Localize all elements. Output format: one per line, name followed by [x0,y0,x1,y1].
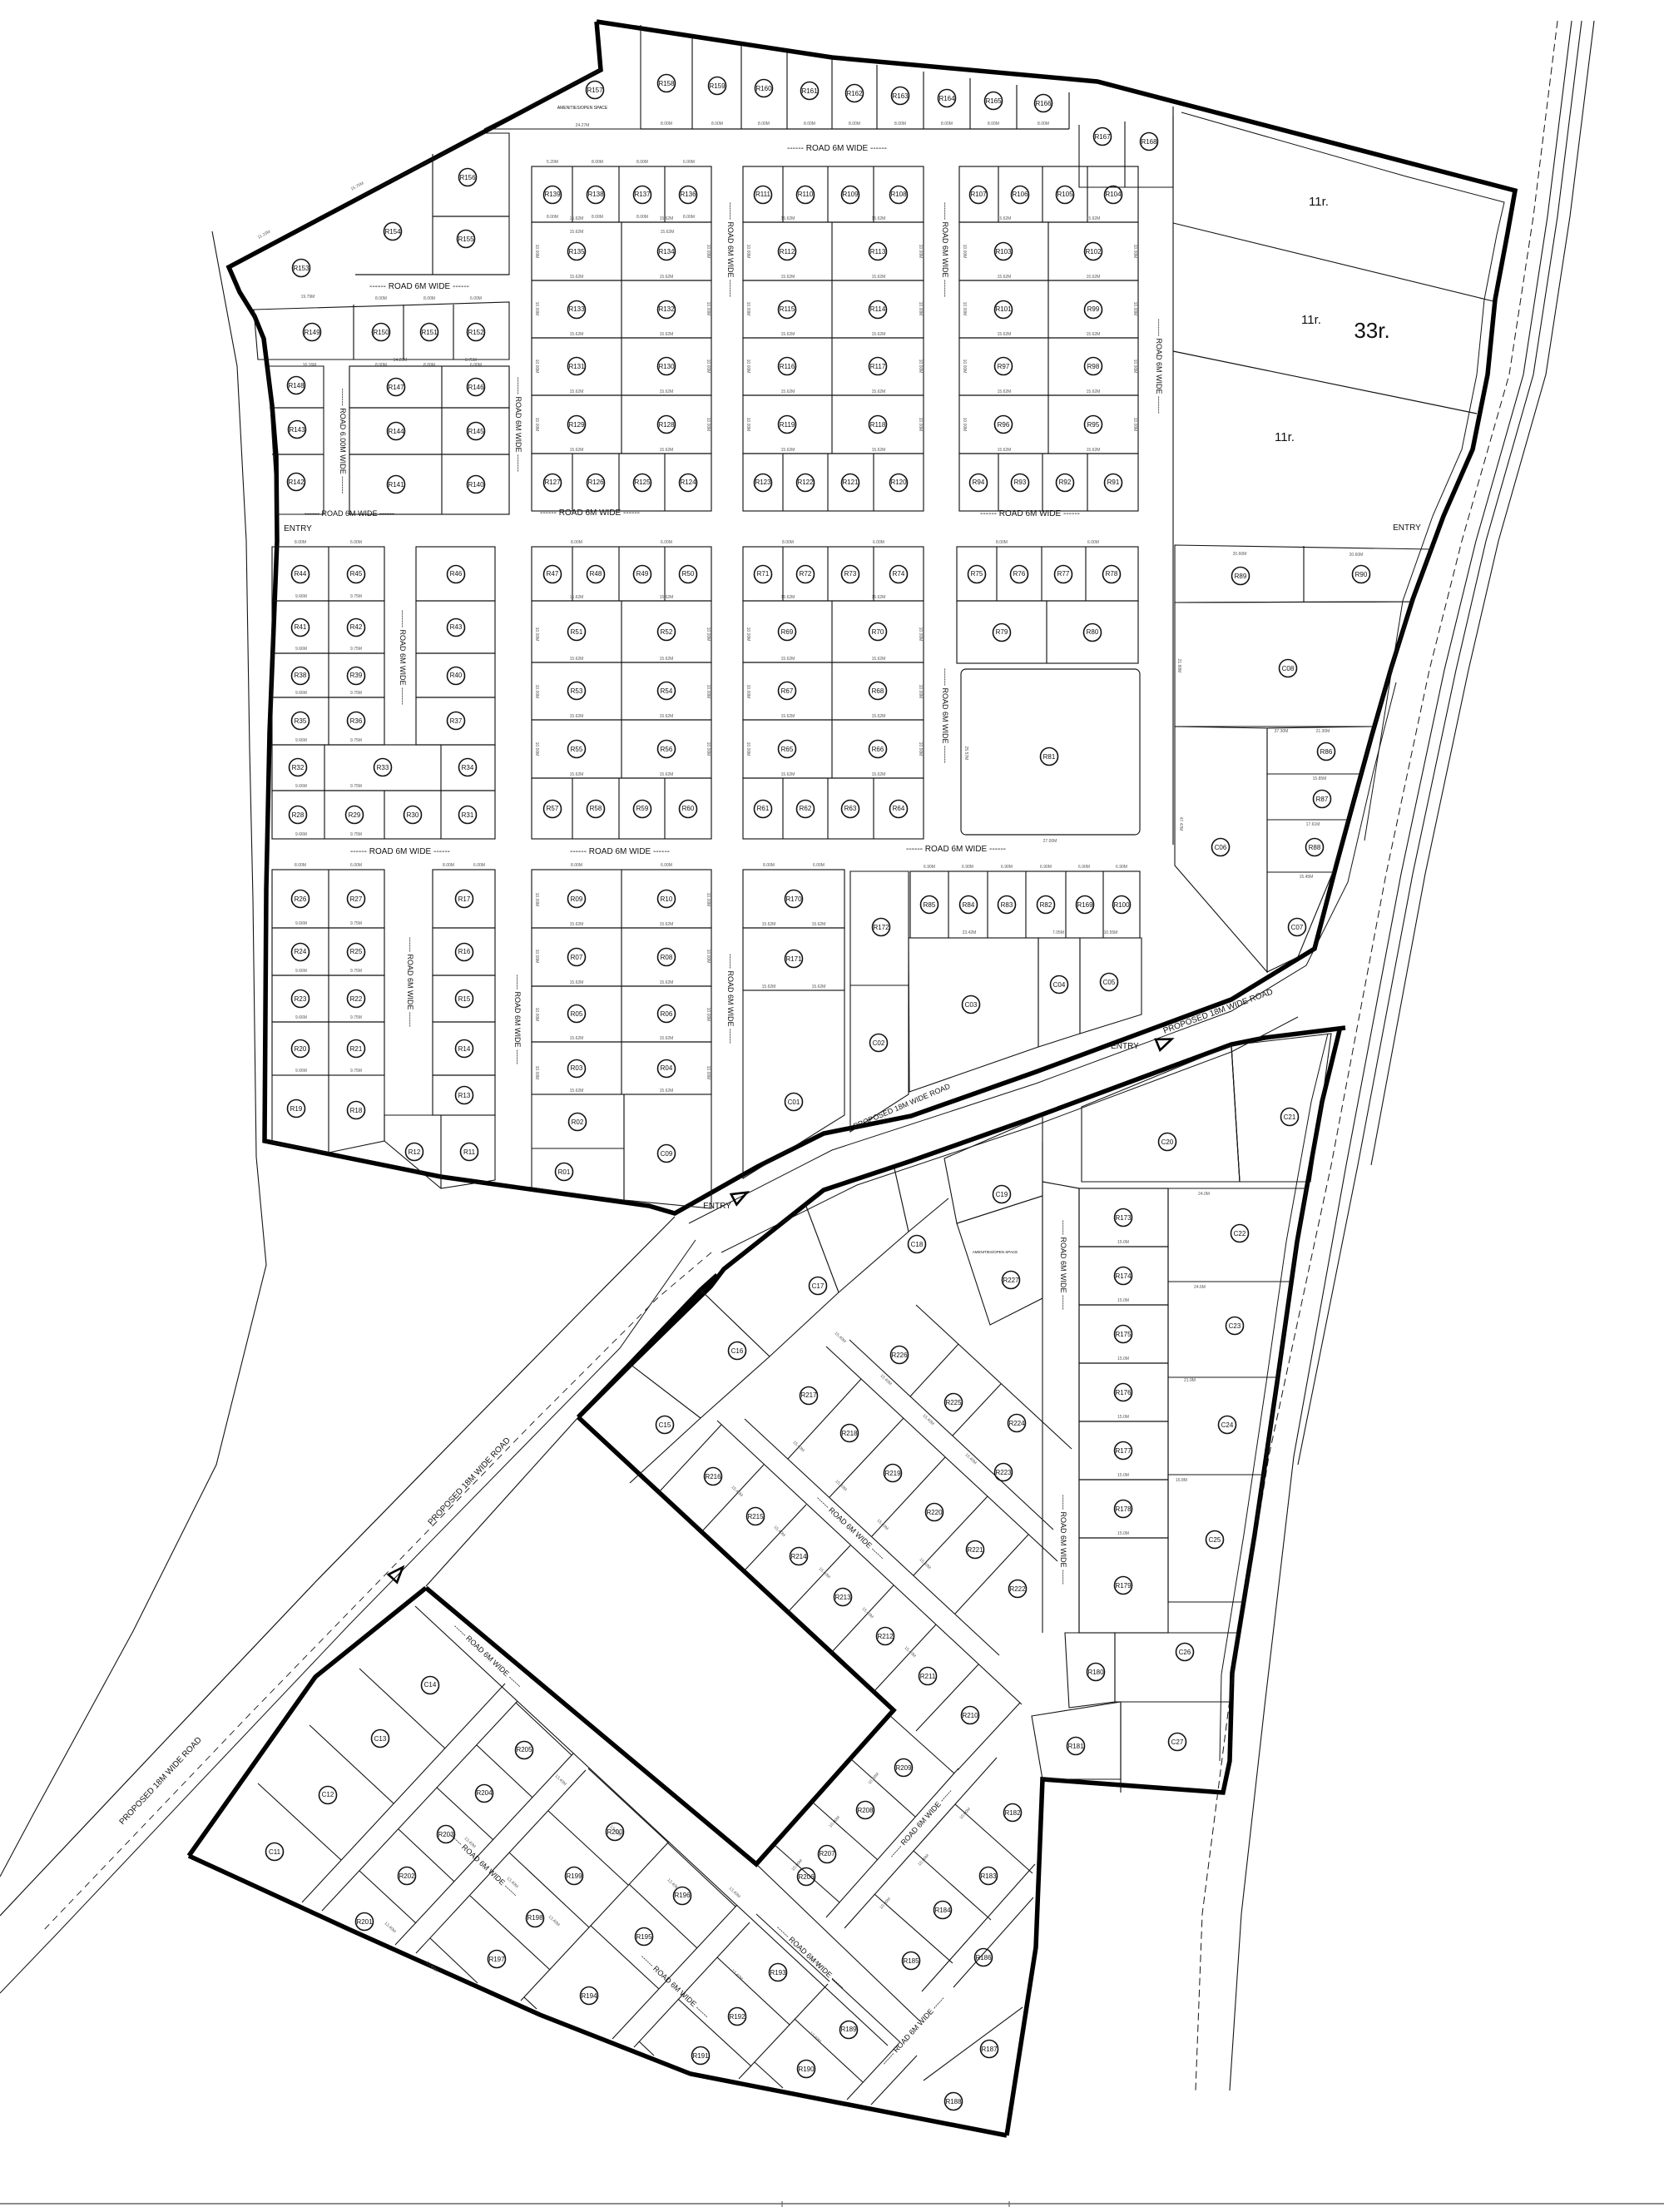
svg-text:R184: R184 [934,1907,951,1914]
svg-text:R223: R223 [995,1469,1012,1476]
svg-text:10.00M: 10.00M [745,360,750,374]
svg-text:R100: R100 [1113,901,1130,909]
svg-text:5.20M: 5.20M [547,160,558,165]
svg-text:R78: R78 [1106,570,1118,578]
svg-text:R114: R114 [870,305,886,313]
svg-text:R43: R43 [450,623,463,631]
svg-text:R160: R160 [755,85,772,92]
svg-text:R112: R112 [780,248,795,255]
svg-text:7.05M: 7.05M [1052,930,1064,935]
svg-text:10.00M: 10.00M [1132,360,1137,374]
svg-text:15.0M: 15.0M [1117,1298,1129,1303]
svg-text:8.00M: 8.00M [763,863,775,868]
svg-text:10.00M: 10.00M [534,360,539,374]
svg-text:R11: R11 [463,1148,476,1156]
svg-text:AMENITIES/OPEN SPACE: AMENITIES/OPEN SPACE [557,106,608,111]
svg-text:R77: R77 [1057,570,1070,578]
svg-text:R212: R212 [877,1633,894,1640]
svg-text:R16: R16 [458,948,471,955]
svg-text:R164: R164 [938,95,955,102]
svg-text:R132: R132 [658,305,675,313]
svg-text:19.79M: 19.79M [301,295,315,300]
svg-text:R155: R155 [458,236,474,243]
svg-text:R208: R208 [857,1807,874,1814]
svg-text:6.90M: 6.90M [1001,865,1013,870]
svg-text:R105: R105 [1057,191,1073,198]
svg-text:8.00M: 8.00M [996,540,1008,545]
svg-text:9.75M: 9.75M [350,969,362,974]
svg-text:9.66M: 9.66M [295,921,307,926]
svg-text:R141: R141 [388,481,404,489]
svg-text:15.62M: 15.62M [570,595,584,600]
svg-text:15.62M: 15.62M [1087,332,1101,337]
svg-text:15.62M: 15.62M [1087,389,1101,394]
svg-text:R186: R186 [975,1954,992,1962]
svg-text:6.00M: 6.00M [1087,540,1099,545]
svg-text:R02: R02 [572,1118,584,1126]
svg-text:24.0M: 24.0M [1198,1192,1210,1197]
svg-text:33r.: 33r. [1354,318,1389,343]
svg-text:R119: R119 [780,421,795,429]
svg-text:15.62M: 15.62M [872,448,886,453]
svg-text:R166: R166 [1035,100,1052,107]
svg-text:R194: R194 [581,1992,597,2000]
svg-text:20.60M: 20.60M [1233,552,1247,557]
svg-text:10.00M: 10.00M [918,418,923,432]
svg-text:R221: R221 [967,1546,983,1554]
svg-text:R159: R159 [709,82,726,90]
svg-text:------- ROAD 6M WIDE -------: ------- ROAD 6M WIDE ------- [941,202,949,297]
svg-text:C12: C12 [322,1791,334,1798]
svg-text:R54: R54 [661,687,673,695]
svg-text:15.62M: 15.62M [781,448,795,453]
svg-text:15.62M: 15.62M [762,984,776,989]
svg-text:R74: R74 [893,570,905,578]
svg-text:R81: R81 [1043,753,1056,761]
svg-text:R197: R197 [488,1956,505,1963]
svg-text:15.62M: 15.62M [660,772,674,777]
svg-text:15.62M: 15.62M [660,448,674,453]
svg-text:R149: R149 [304,329,320,336]
svg-text:------ ROAD 6M WIDE ------: ------ ROAD 6M WIDE ------ [1059,1220,1067,1310]
svg-text:24.27M: 24.27M [576,123,590,128]
svg-text:15.62M: 15.62M [570,275,584,280]
svg-text:15.62M: 15.62M [872,595,886,600]
svg-text:23.42M: 23.42M [963,930,977,935]
svg-text:R22: R22 [350,995,363,1003]
svg-text:10.00M: 10.00M [962,302,967,316]
svg-text:------ ROAD 6M WIDE ------: ------ ROAD 6M WIDE ------ [350,847,450,856]
svg-text:11r.: 11r. [1275,430,1295,444]
svg-text:R51: R51 [571,628,583,636]
svg-text:16.8M: 16.8M [1176,1478,1187,1483]
svg-text:6.90M: 6.90M [1078,865,1090,870]
svg-text:R156: R156 [459,174,476,181]
svg-text:R144: R144 [388,428,404,435]
svg-text:R138: R138 [587,191,604,198]
svg-text:10.00M: 10.00M [706,302,711,316]
svg-text:R34: R34 [462,764,474,771]
svg-text:C18: C18 [911,1241,924,1248]
svg-text:15.62M: 15.62M [570,714,584,719]
svg-text:R90: R90 [1355,571,1368,578]
svg-text:R199: R199 [566,1872,582,1880]
svg-text:R147: R147 [388,384,404,391]
svg-text:R168: R168 [1141,138,1157,146]
svg-text:ENTRY: ENTRY [1393,523,1421,533]
svg-text:15.62M: 15.62M [570,772,584,777]
svg-text:R88: R88 [1309,844,1321,851]
svg-text:R55: R55 [571,746,583,753]
svg-text:9.66M: 9.66M [295,969,307,974]
svg-text:R129: R129 [568,421,585,429]
svg-text:R173: R173 [1115,1214,1132,1222]
svg-text:8.00M: 8.00M [1038,122,1049,126]
svg-text:R32: R32 [292,764,305,771]
svg-text:R226: R226 [891,1352,908,1359]
svg-text:------ ROAD 6M WIDE ------: ------ ROAD 6M WIDE ------ [906,845,1006,854]
svg-text:R220: R220 [926,1509,943,1516]
svg-text:15.62M: 15.62M [872,332,886,337]
svg-text:21.9M: 21.9M [1184,1378,1196,1383]
svg-text:R180: R180 [1087,1669,1104,1676]
svg-text:C14: C14 [424,1681,437,1689]
svg-text:R60: R60 [682,805,695,812]
svg-text:R143: R143 [289,426,305,434]
svg-text:6.00M: 6.00M [813,863,825,868]
svg-text:15.62M: 15.62M [872,714,886,719]
svg-text:R31: R31 [462,811,474,819]
svg-text:10.00M: 10.00M [918,360,923,374]
svg-text:R01: R01 [558,1168,571,1176]
svg-text:10.00M: 10.00M [706,742,711,756]
svg-text:C08: C08 [1282,665,1295,672]
svg-text:R125: R125 [634,479,651,486]
svg-text:6.00M: 6.00M [473,863,485,868]
svg-text:15.62M: 15.62M [570,216,584,221]
svg-text:R76: R76 [1013,570,1026,578]
svg-text:R214: R214 [790,1553,807,1560]
svg-text:R218: R218 [841,1430,858,1437]
svg-text:ENTRY: ENTRY [703,1202,731,1211]
svg-text:R139: R139 [544,191,561,198]
svg-text:R04: R04 [661,1064,673,1072]
svg-text:------- ROAD 6.00M WIDE ------: ------- ROAD 6.00M WIDE ------- [339,389,347,493]
svg-text:ENTRY: ENTRY [284,524,312,533]
svg-text:R110: R110 [798,191,814,198]
svg-text:R128: R128 [658,421,675,429]
svg-text:R111: R111 [755,191,770,198]
svg-text:8.00M: 8.00M [711,122,723,126]
svg-text:R95: R95 [1087,421,1100,429]
svg-text:R193: R193 [770,1969,786,1976]
svg-text:15.85M: 15.85M [1313,776,1327,781]
svg-text:C03: C03 [965,1001,978,1009]
svg-text:R190: R190 [798,2066,815,2073]
svg-text:R163: R163 [892,92,909,100]
svg-text:R157: R157 [587,87,603,94]
svg-text:10.00M: 10.00M [918,685,923,699]
svg-text:R104: R104 [1105,191,1122,198]
svg-text:8.00M: 8.00M [571,863,582,868]
svg-text:6.90M: 6.90M [1040,865,1052,870]
svg-text:R07: R07 [571,954,583,961]
svg-text:6.90M: 6.90M [1116,865,1127,870]
svg-text:R142: R142 [288,479,305,486]
svg-text:R06: R06 [661,1010,673,1018]
svg-text:R181: R181 [1067,1743,1084,1750]
svg-text:15.0M: 15.0M [1117,1356,1129,1361]
svg-text:15.0M: 15.0M [1117,1473,1129,1478]
svg-text:10.00M: 10.00M [534,418,539,432]
svg-text:R44: R44 [295,570,307,578]
svg-text:C09: C09 [661,1150,673,1158]
svg-text:R201: R201 [356,1918,373,1926]
svg-text:R130: R130 [658,363,675,370]
svg-text:------ ROAD 6M WIDE ------: ------ ROAD 6M WIDE ------ [726,954,735,1044]
svg-text:C05: C05 [1103,979,1116,986]
svg-text:15.62M: 15.62M [660,332,674,337]
svg-text:R57: R57 [547,805,559,812]
svg-text:C20: C20 [1161,1138,1174,1146]
svg-text:R162: R162 [846,90,863,97]
svg-text:6.00M: 6.00M [683,160,695,165]
svg-text:R113: R113 [870,248,886,255]
svg-text:9.66M: 9.66M [295,691,307,696]
svg-text:8.00M: 8.00M [423,296,435,301]
svg-text:R210: R210 [962,1712,978,1719]
svg-text:10.00M: 10.00M [745,245,750,259]
svg-text:R67: R67 [781,687,794,695]
svg-text:15.62M: 15.62M [781,332,795,337]
svg-text:------ ROAD 6M WIDE ------: ------ ROAD 6M WIDE ------ [1059,1495,1067,1585]
svg-text:9.75M: 9.75M [350,784,362,789]
svg-text:15.62M: 15.62M [781,714,795,719]
svg-text:10.00M: 10.00M [745,627,750,642]
svg-text:15.62M: 15.62M [660,714,674,719]
svg-text:------- ROAD 6M WIDE -------: ------- ROAD 6M WIDE ------- [941,668,949,763]
svg-text:C07: C07 [1291,924,1304,931]
svg-text:R146: R146 [468,384,484,391]
svg-text:R37: R37 [450,717,463,725]
svg-text:15.62M: 15.62M [762,922,776,927]
svg-text:R172: R172 [873,924,889,931]
svg-text:R92: R92 [1059,479,1072,486]
svg-text:9.66M: 9.66M [295,1015,307,1020]
svg-text:R115: R115 [780,305,795,313]
svg-text:8.00M: 8.00M [661,122,672,126]
svg-text:15.62M: 15.62M [660,389,674,394]
svg-text:8.00M: 8.00M [894,122,906,126]
svg-text:10.00M: 10.00M [706,360,711,374]
svg-text:R192: R192 [729,2013,745,2021]
svg-text:9.66M: 9.66M [295,738,307,743]
svg-text:R102: R102 [1085,248,1102,255]
svg-text:R50: R50 [682,570,695,578]
svg-text:R195: R195 [636,1933,652,1941]
svg-text:10.00M: 10.00M [534,302,539,316]
svg-text:R23: R23 [295,995,307,1003]
svg-text:R58: R58 [590,805,602,812]
svg-text:10.00M: 10.00M [534,1066,539,1080]
svg-text:10.00M: 10.00M [706,950,711,964]
svg-text:R70: R70 [872,628,884,636]
svg-text:R152: R152 [468,329,484,336]
svg-text:R215: R215 [747,1513,764,1520]
svg-text:15.62M: 15.62M [1087,448,1101,453]
svg-text:15.62M: 15.62M [781,275,795,280]
svg-text:R109: R109 [842,191,859,198]
svg-text:C24: C24 [1221,1421,1234,1429]
svg-text:21.30M: 21.30M [1316,729,1330,734]
svg-text:R68: R68 [872,687,884,695]
svg-text:9.75M: 9.75M [350,594,362,599]
svg-text:17.61M: 17.61M [1306,822,1320,827]
svg-text:14.25M: 14.25M [394,358,408,363]
svg-text:R116: R116 [780,363,795,370]
svg-text:R12: R12 [409,1148,421,1156]
svg-text:24.6M: 24.6M [1194,1285,1206,1290]
svg-text:C19: C19 [996,1191,1008,1198]
svg-text:10.00M: 10.00M [706,1008,711,1022]
svg-text:R79: R79 [996,628,1008,636]
svg-text:R124: R124 [680,479,696,486]
svg-text:R133: R133 [568,305,585,313]
svg-text:15.62M: 15.62M [660,1089,674,1094]
svg-text:10.00M: 10.00M [962,245,967,259]
svg-text:------ ROAD 6M WIDE ------: ------ ROAD 6M WIDE ------ [787,144,887,153]
svg-text:R151: R151 [421,329,438,336]
svg-text:C15: C15 [659,1421,671,1429]
svg-text:15.62M: 15.62M [570,980,584,985]
svg-text:10.00M: 10.00M [706,245,711,259]
svg-text:8.00M: 8.00M [295,863,306,868]
svg-text:C22: C22 [1234,1230,1246,1237]
svg-text:15.62M: 15.62M [998,389,1012,394]
svg-text:R207: R207 [819,1850,835,1857]
svg-text:R52: R52 [661,628,673,636]
svg-text:C04: C04 [1053,981,1066,989]
svg-text:8.00M: 8.00M [443,863,454,868]
svg-text:15.62M: 15.62M [781,216,795,221]
svg-text:8.00M: 8.00M [592,160,603,165]
svg-text:8.00M: 8.00M [375,363,387,368]
svg-text:8.00M: 8.00M [295,540,306,545]
svg-text:R209: R209 [895,1764,912,1772]
svg-text:R08: R08 [661,954,673,961]
svg-text:R28: R28 [292,811,305,819]
svg-text:R18: R18 [350,1107,363,1114]
svg-text:R45: R45 [350,570,363,578]
svg-text:11r.: 11r. [1301,313,1321,327]
svg-text:25.57M: 25.57M [963,746,968,761]
svg-text:8.00M: 8.00M [804,122,815,126]
svg-text:R101: R101 [995,305,1012,313]
svg-text:8.00M: 8.00M [758,122,770,126]
svg-text:R134: R134 [658,248,675,255]
svg-text:15.62M: 15.62M [781,595,795,600]
svg-text:11r.: 11r. [1309,195,1329,209]
svg-text:------- ROAD 6M WIDE -------: ------- ROAD 6M WIDE ------- [399,610,407,705]
svg-text:10.00M: 10.00M [706,627,711,642]
svg-text:9.75M: 9.75M [350,691,362,696]
svg-text:10.00M: 10.00M [534,893,539,907]
svg-text:R202: R202 [399,1872,415,1880]
svg-text:R187: R187 [981,2046,998,2053]
svg-text:R85: R85 [924,901,936,909]
svg-text:R118: R118 [870,421,886,429]
svg-text:15.62M: 15.62M [570,230,584,235]
svg-text:R161: R161 [801,87,818,95]
svg-text:R191: R191 [692,2052,709,2060]
svg-text:15.62M: 15.62M [998,216,1012,221]
svg-text:10.00M: 10.00M [918,302,923,316]
svg-text:R120: R120 [890,479,907,486]
svg-text:15.62M: 15.62M [570,922,584,927]
svg-text:8.00M: 8.00M [683,215,695,220]
svg-text:R140: R140 [468,481,484,489]
svg-text:15.62M: 15.62M [812,984,826,989]
svg-text:R39: R39 [350,672,363,679]
svg-text:9.75M: 9.75M [350,1015,362,1020]
svg-text:R216: R216 [705,1473,721,1480]
svg-text:10.00M: 10.00M [1132,245,1137,259]
svg-text:R49: R49 [636,570,649,578]
svg-text:R75: R75 [971,570,983,578]
svg-text:9.75M: 9.75M [350,647,362,652]
svg-text:R41: R41 [295,623,307,631]
svg-text:R46: R46 [450,570,463,578]
svg-text:15.62M: 15.62M [660,275,674,280]
svg-text:15.62M: 15.62M [781,657,795,662]
svg-text:R94: R94 [973,479,985,486]
svg-text:R21: R21 [350,1045,363,1053]
svg-text:ENTRY: ENTRY [1111,1042,1139,1051]
svg-text:R80: R80 [1087,628,1099,636]
svg-text:------ ROAD 6M WIDE ------: ------ ROAD 6M WIDE ------ [513,975,522,1064]
svg-text:R127: R127 [544,479,561,486]
svg-text:R206: R206 [798,1873,815,1881]
svg-text:C21: C21 [1284,1113,1296,1121]
svg-text:10.00M: 10.00M [534,627,539,642]
svg-text:R170: R170 [785,895,802,903]
svg-text:R65: R65 [781,746,794,753]
svg-text:R217: R217 [800,1391,817,1399]
svg-text:R62: R62 [800,805,812,812]
svg-text:8.00M: 8.00M [571,540,582,545]
svg-text:R211: R211 [920,1673,936,1680]
svg-text:R72: R72 [800,570,812,578]
svg-text:C25: C25 [1209,1536,1221,1544]
svg-text:R19: R19 [290,1105,303,1113]
svg-text:15.0M: 15.0M [1117,1531,1129,1536]
svg-text:R225: R225 [945,1399,962,1406]
svg-text:R84: R84 [963,901,975,909]
svg-text:R26: R26 [295,895,307,903]
svg-text:15.62M: 15.62M [872,275,886,280]
svg-text:R188: R188 [945,2098,962,2105]
svg-text:20.60M: 20.60M [1350,553,1364,558]
svg-text:C01: C01 [788,1099,800,1106]
svg-text:R158: R158 [658,80,675,87]
svg-text:15.62M: 15.62M [660,216,674,221]
svg-text:C02: C02 [873,1039,885,1047]
svg-text:R135: R135 [568,248,585,255]
svg-text:R222: R222 [1009,1585,1026,1593]
svg-text:R145: R145 [468,428,484,435]
svg-text:8.00M: 8.00M [941,122,953,126]
svg-text:R205: R205 [516,1746,532,1753]
